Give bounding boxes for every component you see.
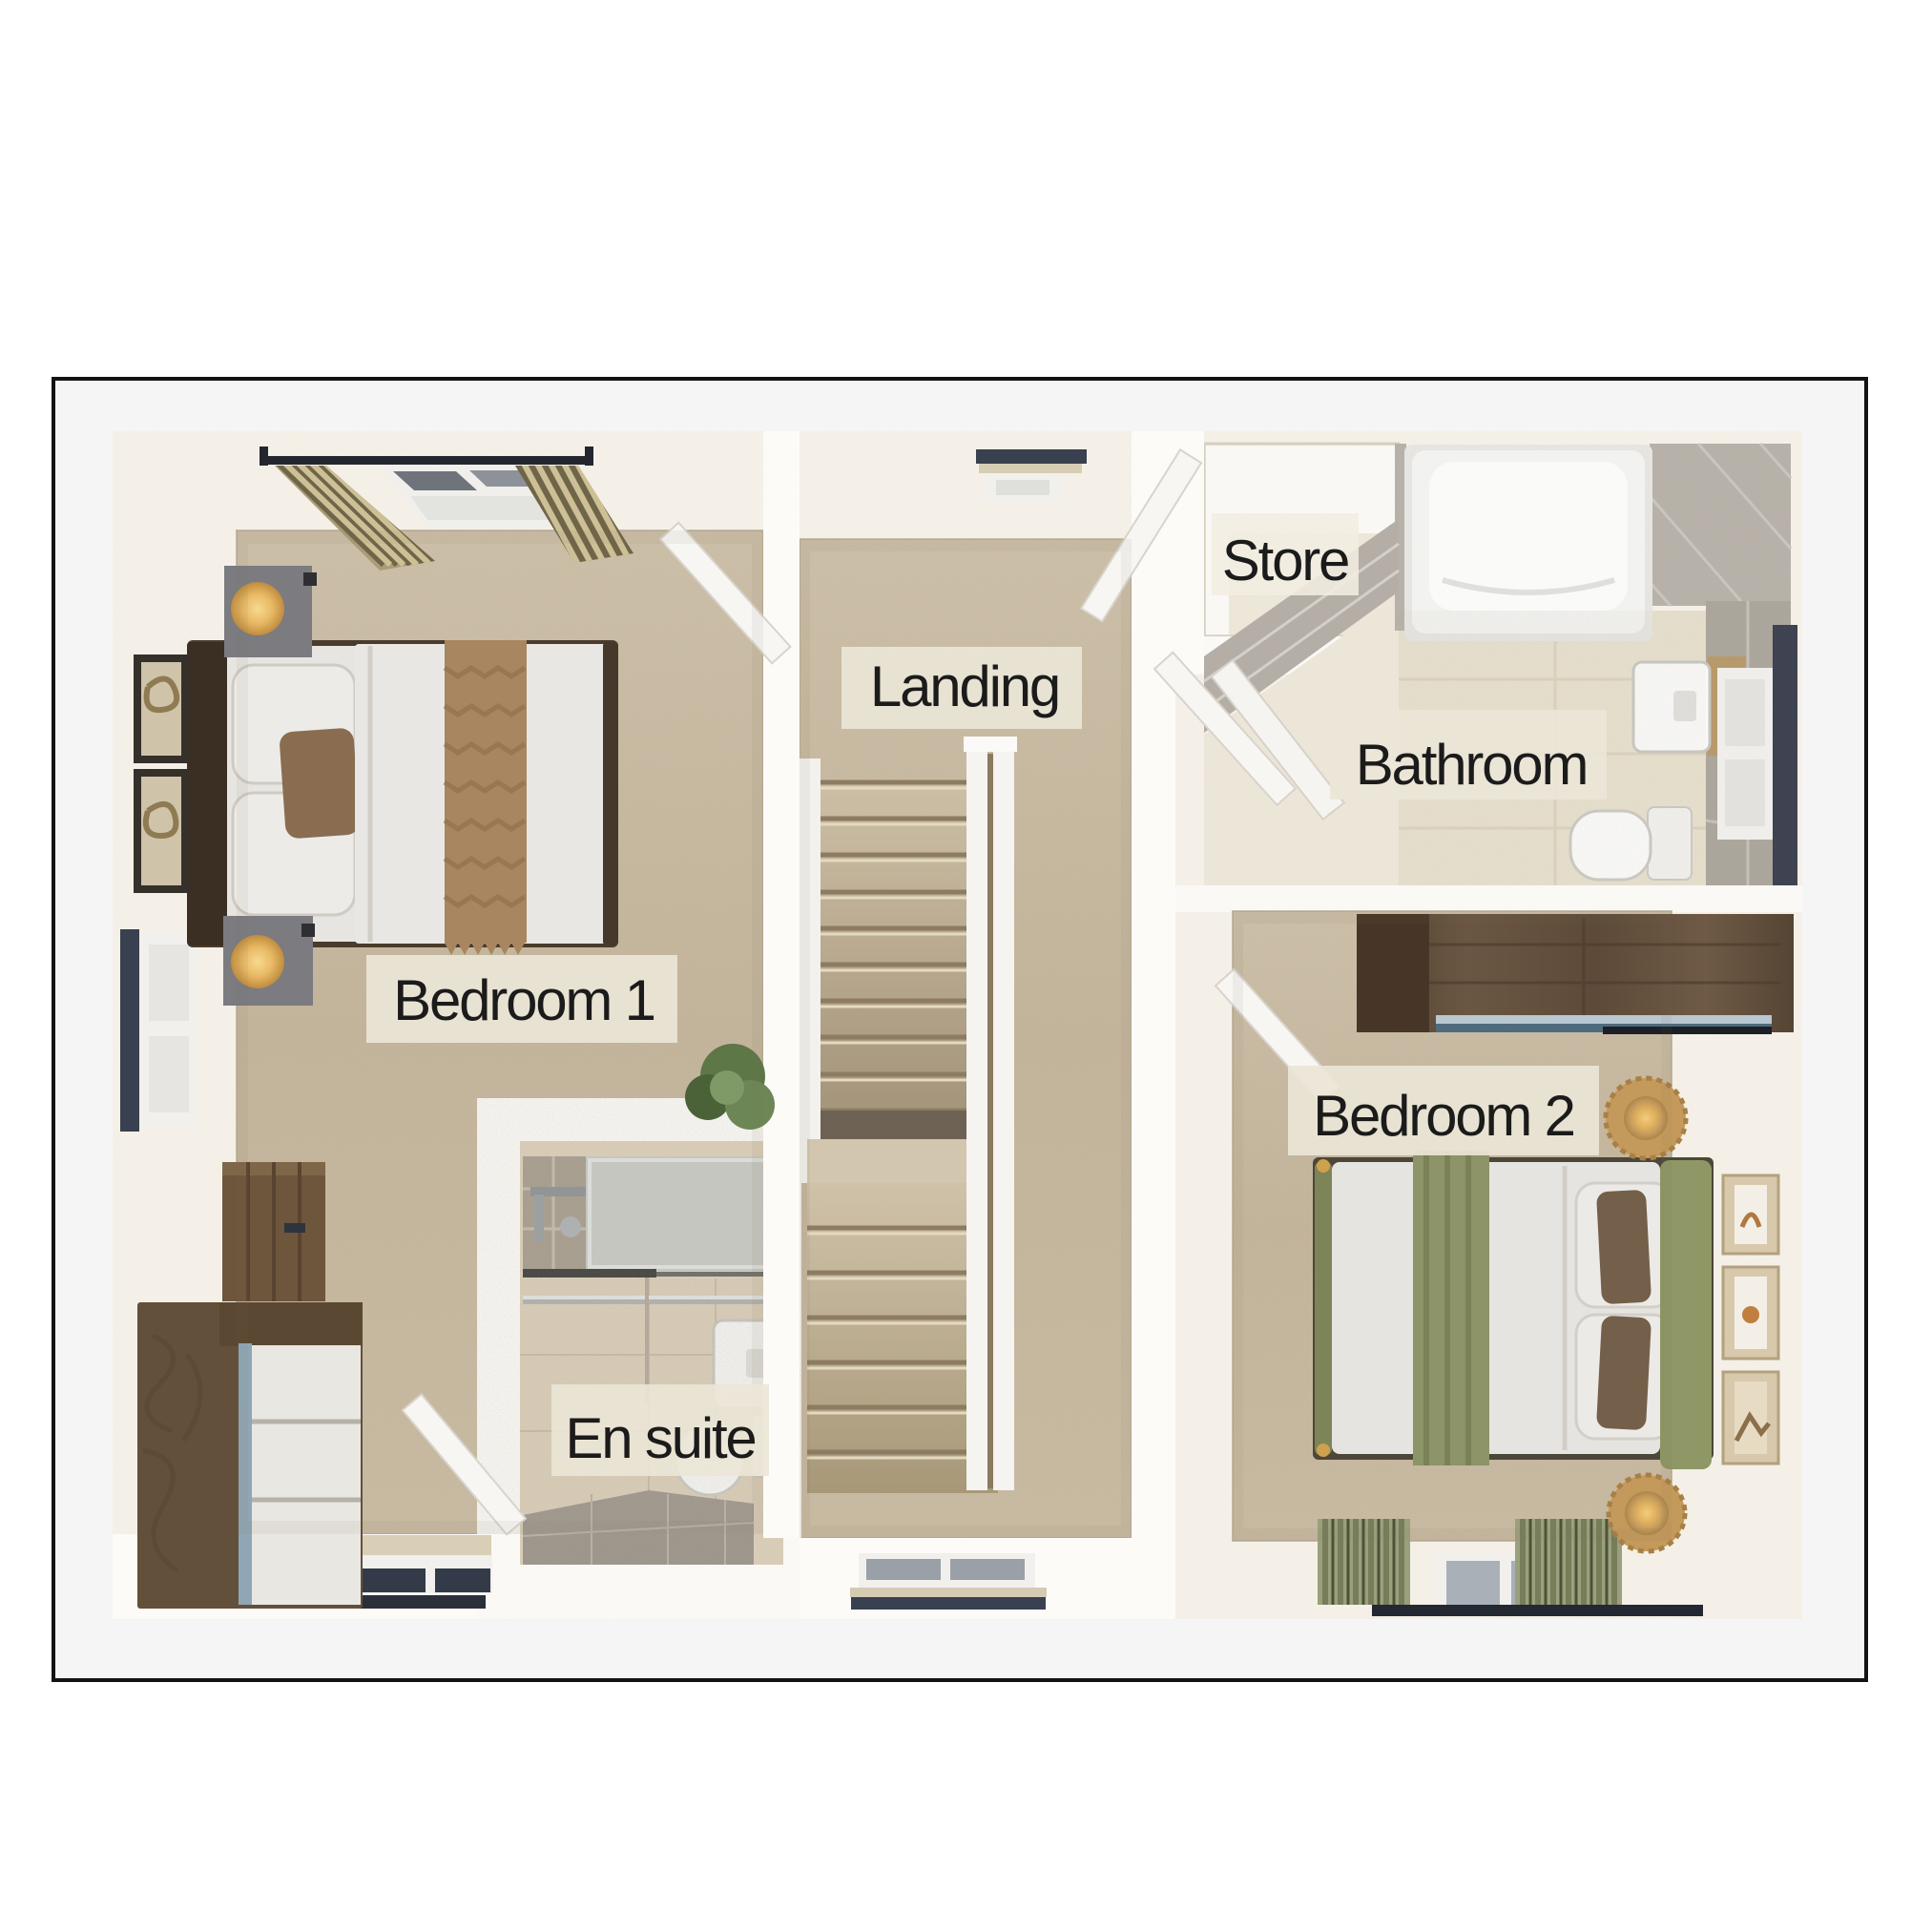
svg-text:En suite: En suite: [565, 1406, 755, 1470]
svg-text:Bathroom: Bathroom: [1356, 733, 1588, 797]
svg-text:Bedroom 1: Bedroom 1: [393, 968, 654, 1032]
svg-text:Store: Store: [1222, 529, 1348, 592]
svg-text:Landing: Landing: [870, 654, 1059, 718]
svg-text:Bedroom 2: Bedroom 2: [1313, 1084, 1574, 1148]
